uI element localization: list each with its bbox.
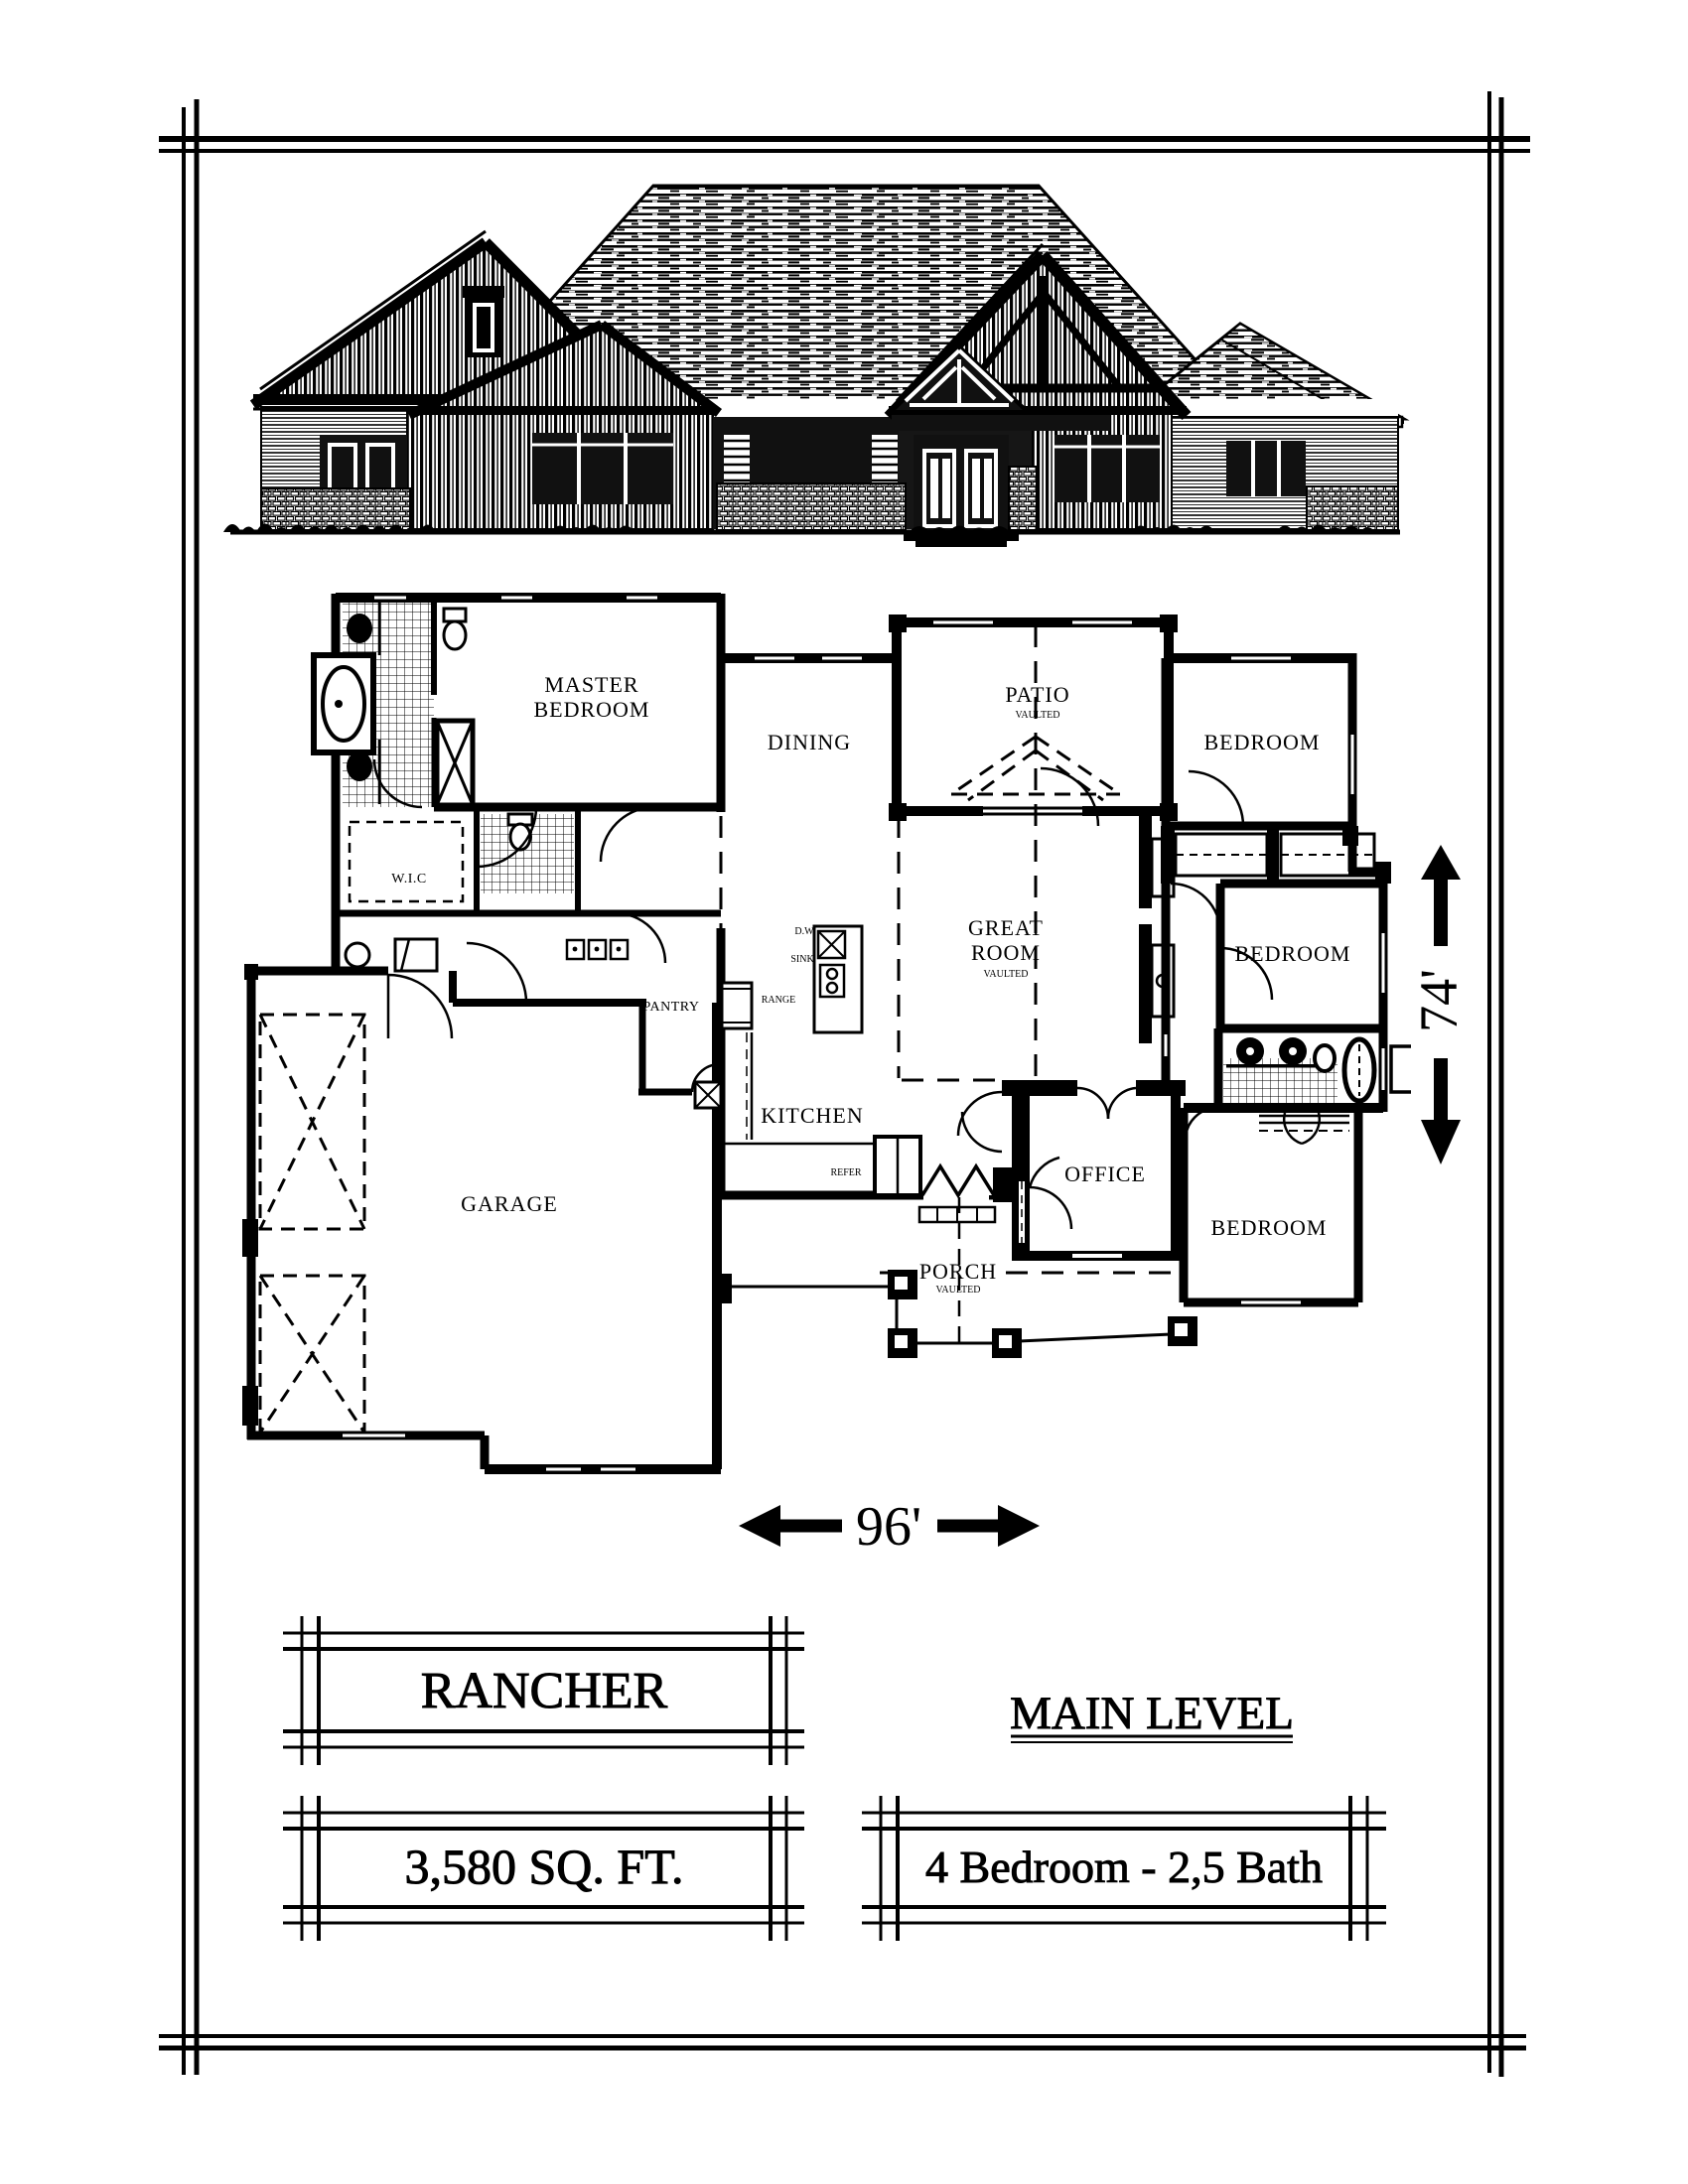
- svg-text:OFFICE: OFFICE: [1064, 1161, 1146, 1186]
- svg-text:RANGE: RANGE: [762, 995, 795, 1006]
- svg-text:ROOM: ROOM: [971, 940, 1041, 965]
- svg-text:VAULTED: VAULTED: [1015, 710, 1059, 721]
- svg-text:MASTER: MASTER: [544, 672, 638, 697]
- svg-text:BEDROOM: BEDROOM: [1203, 730, 1320, 754]
- svg-text:96': 96': [856, 1496, 921, 1558]
- svg-text:4 Bedroom - 2,5 Bath: 4 Bedroom - 2,5 Bath: [925, 1842, 1323, 1892]
- svg-text:W.I.C: W.I.C: [391, 872, 426, 887]
- svg-text:VAULTED: VAULTED: [935, 1285, 980, 1296]
- svg-text:PANTRY: PANTRY: [643, 1000, 700, 1015]
- svg-text:GARAGE: GARAGE: [461, 1191, 558, 1216]
- svg-text:BEDROOM: BEDROOM: [1234, 941, 1350, 966]
- svg-text:REFER: REFER: [830, 1167, 861, 1178]
- svg-text:BEDROOM: BEDROOM: [1210, 1215, 1327, 1240]
- svg-text:KITCHEN: KITCHEN: [761, 1103, 864, 1128]
- svg-text:DINING: DINING: [768, 730, 851, 754]
- svg-text:SINK: SINK: [790, 954, 814, 965]
- svg-text:3,580 SQ. FT.: 3,580 SQ. FT.: [404, 1839, 683, 1894]
- svg-text:BEDROOM: BEDROOM: [533, 697, 649, 722]
- svg-text:PATIO: PATIO: [1005, 682, 1069, 707]
- svg-text:MAIN LEVEL: MAIN LEVEL: [1010, 1688, 1294, 1739]
- svg-text:GREAT: GREAT: [968, 915, 1044, 940]
- svg-text:D.W: D.W: [794, 926, 814, 937]
- svg-text:VAULTED: VAULTED: [983, 969, 1028, 980]
- svg-text:RANCHER: RANCHER: [421, 1663, 668, 1719]
- svg-text:PORCH: PORCH: [919, 1259, 997, 1284]
- svg-text:74': 74': [1409, 969, 1469, 1032]
